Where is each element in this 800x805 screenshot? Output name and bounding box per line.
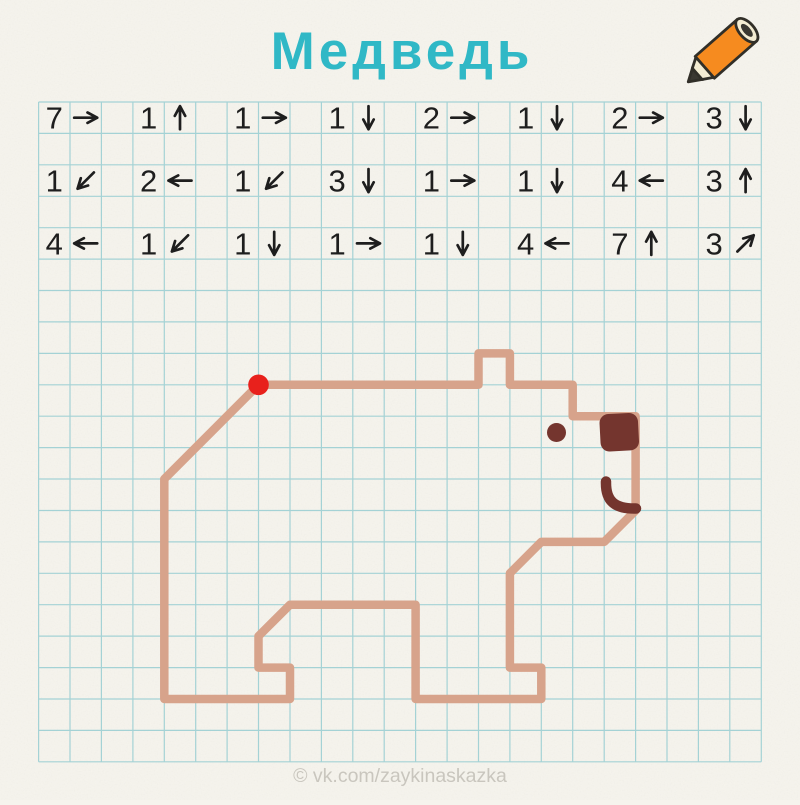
svg-text:1: 1 [140,101,157,136]
svg-text:4: 4 [517,226,534,261]
svg-text:1: 1 [234,164,251,199]
svg-text:3: 3 [705,101,722,136]
svg-text:1: 1 [234,101,251,136]
svg-text:3: 3 [705,226,722,261]
svg-text:1: 1 [46,164,63,199]
svg-text:4: 4 [611,164,628,199]
svg-text:1: 1 [517,101,534,136]
svg-text:1: 1 [234,226,251,261]
svg-text:3: 3 [705,164,722,199]
svg-text:2: 2 [611,101,628,136]
svg-text:1: 1 [423,164,440,199]
svg-text:7: 7 [611,226,628,261]
svg-text:3: 3 [328,164,345,199]
svg-text:Медведь: Медведь [271,22,534,81]
svg-text:© vk.com/zaykinaskazka: © vk.com/zaykinaskazka [293,765,507,787]
svg-text:1: 1 [140,226,157,261]
svg-text:1: 1 [328,226,345,261]
svg-text:1: 1 [423,226,440,261]
svg-text:2: 2 [423,101,440,136]
svg-text:7: 7 [46,101,63,136]
svg-text:1: 1 [328,101,345,136]
svg-text:1: 1 [517,164,534,199]
svg-text:2: 2 [140,164,157,199]
svg-text:4: 4 [46,226,63,261]
